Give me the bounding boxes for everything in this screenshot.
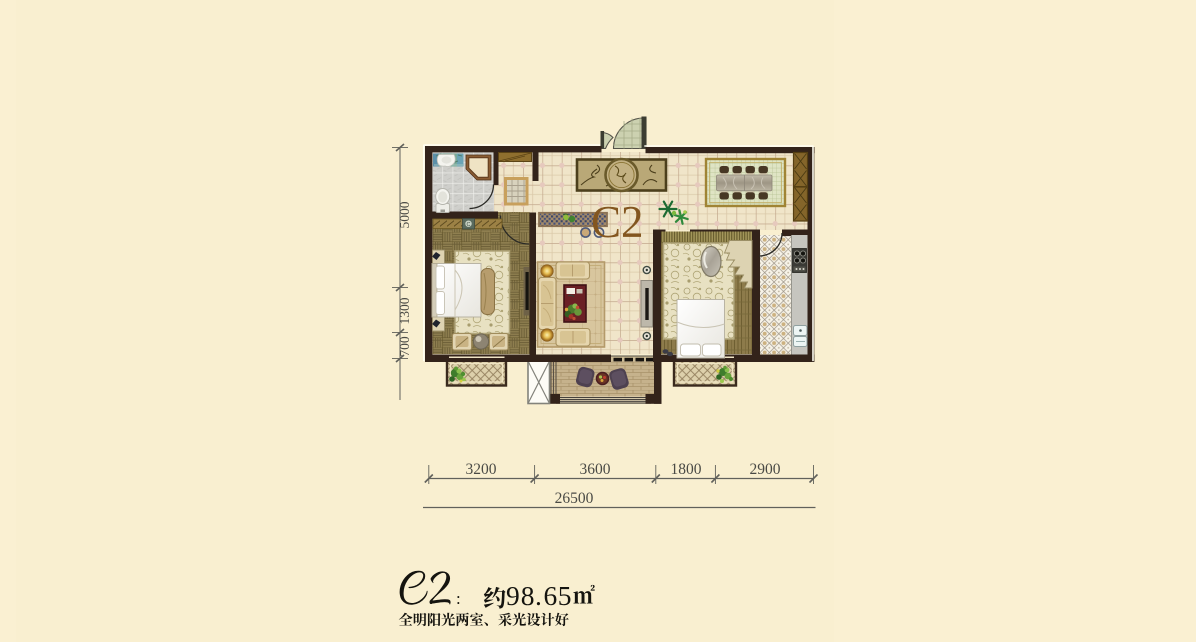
svg-text::: : (456, 589, 461, 608)
svg-text:65: 65 (544, 580, 573, 611)
svg-text:C2: C2 (591, 197, 644, 247)
svg-text:2900: 2900 (750, 461, 781, 478)
svg-text:26500: 26500 (555, 490, 594, 507)
svg-text:3600: 3600 (580, 461, 611, 478)
svg-text:1800: 1800 (671, 461, 702, 478)
svg-text:3200: 3200 (466, 461, 497, 478)
svg-text:98: 98 (506, 580, 536, 611)
svg-text:5000: 5000 (397, 201, 412, 228)
svg-text:.: . (535, 580, 542, 611)
svg-text:C: C (467, 222, 471, 228)
svg-text:1300: 1300 (397, 297, 412, 324)
svg-text:700: 700 (397, 336, 412, 357)
